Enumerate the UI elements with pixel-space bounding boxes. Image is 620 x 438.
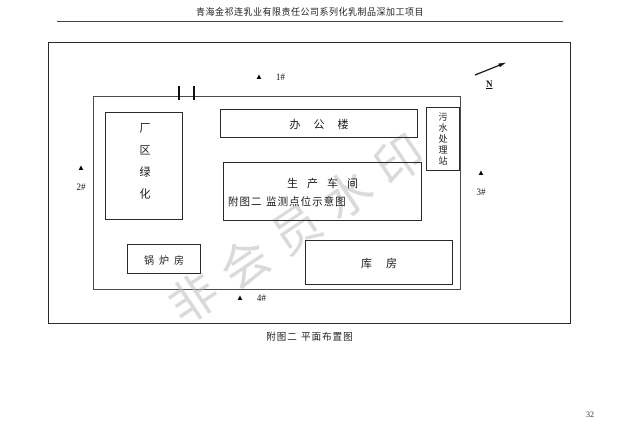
production-workshop-note: 附图二 监测点位示意图 (224, 194, 347, 209)
gate-tick-right (193, 86, 195, 100)
north-arrow-icon (471, 57, 515, 79)
document-header-title: 青海金祁连乳业有限责任公司系列化乳制品深加工项目 (0, 5, 620, 18)
monitoring-point-1: ▲ 1# (255, 72, 285, 82)
header-rule (57, 21, 563, 22)
monitoring-point-label: 2# (77, 182, 86, 192)
building-office: 办公楼 (220, 109, 418, 138)
gate-tick-left (178, 86, 180, 100)
monitoring-point-icon: ▲ (255, 73, 263, 81)
monitoring-point-icon: ▲ (236, 294, 244, 302)
building-production-workshop: 生产车间 附图二 监测点位示意图 (223, 162, 422, 221)
document-page: 青海金祁连乳业有限责任公司系列化乳制品深加工项目 非会员水印 N ▲ 1# ▲ … (0, 0, 620, 438)
monitoring-point-3: ▲ 3# (464, 169, 498, 197)
monitoring-point-icon: ▲ (77, 164, 85, 172)
monitoring-point-4: ▲ 4# (236, 293, 266, 303)
building-green-area: 厂区绿化 (105, 112, 183, 220)
page-number: 32 (586, 410, 594, 419)
building-warehouse: 库房 (305, 240, 453, 285)
building-sewage-treatment-station: 污水处理站 (426, 107, 460, 171)
monitoring-point-label: 1# (276, 72, 285, 82)
production-workshop-label: 生产车间 (278, 175, 367, 191)
monitoring-point-2: ▲ 2# (64, 164, 98, 192)
building-boiler-room: 锅炉房 (127, 244, 201, 274)
monitoring-point-icon: ▲ (477, 169, 485, 177)
monitoring-point-label: 3# (477, 187, 486, 197)
figure-caption: 附图二 平面布置图 (0, 329, 620, 343)
monitoring-point-label: 4# (257, 293, 266, 303)
north-label: N (486, 79, 493, 89)
